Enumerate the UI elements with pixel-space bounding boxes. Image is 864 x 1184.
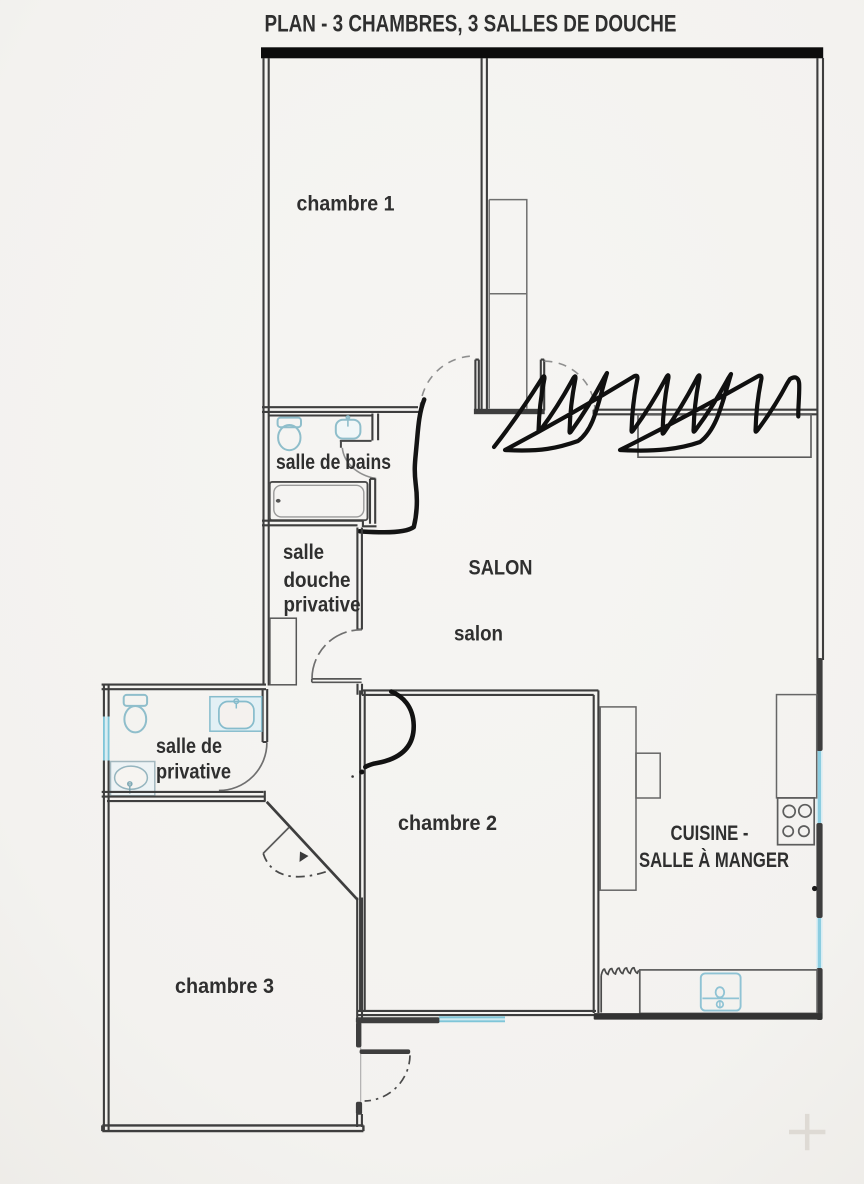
svg-text:SALON: SALON [469,557,533,580]
svg-text:privative: privative [284,594,361,617]
svg-text:chambre 3: chambre 3 [175,975,274,998]
svg-text:salle de: salle de [156,735,222,758]
svg-text:chambre 2: chambre 2 [398,812,497,835]
svg-text:salon: salon [454,623,503,646]
svg-text:PLAN - 3 CHAMBRES, 3 SALLES DE: PLAN - 3 CHAMBRES, 3 SALLES DE DOUCHE [265,11,677,38]
svg-text:CUISINE -: CUISINE - [671,822,749,845]
svg-text:chambre 1: chambre 1 [297,193,395,216]
svg-text:douche: douche [284,569,351,592]
svg-text:privative: privative [156,761,231,784]
svg-text:salle de bains: salle de bains [276,451,391,474]
svg-text:salle: salle [283,541,324,564]
svg-text:SALLE À MANGER: SALLE À MANGER [639,849,789,872]
